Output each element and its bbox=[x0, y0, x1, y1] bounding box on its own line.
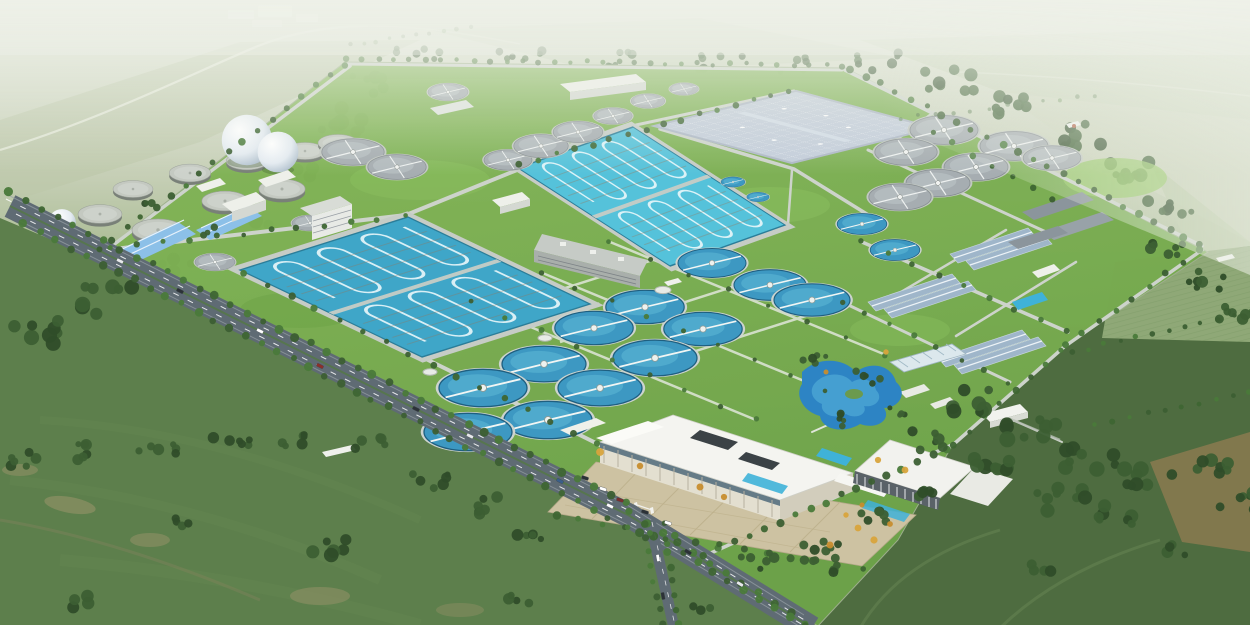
tree-clump bbox=[75, 297, 90, 312]
tree bbox=[663, 548, 671, 556]
tree bbox=[353, 388, 362, 397]
tree bbox=[1064, 328, 1070, 334]
tree bbox=[161, 292, 169, 300]
tree bbox=[574, 344, 580, 350]
tree bbox=[465, 420, 473, 428]
tree-clump bbox=[282, 443, 289, 450]
tree bbox=[179, 300, 185, 306]
tree bbox=[403, 213, 408, 218]
tree bbox=[606, 239, 611, 244]
tree-clump bbox=[1042, 493, 1053, 504]
yellow-tree bbox=[855, 525, 862, 532]
tree-clump bbox=[205, 230, 211, 236]
tree bbox=[1043, 362, 1049, 368]
tree-clump bbox=[1051, 482, 1064, 495]
tree bbox=[1096, 318, 1102, 324]
tree-clump bbox=[999, 431, 1015, 447]
small-tank bbox=[655, 286, 671, 293]
tree bbox=[402, 390, 409, 397]
tree-clump bbox=[837, 416, 843, 422]
tree bbox=[539, 270, 544, 275]
tree bbox=[1086, 348, 1091, 353]
yellow-tree bbox=[721, 494, 727, 500]
tree bbox=[495, 458, 504, 467]
tree bbox=[641, 520, 649, 528]
tree-clump bbox=[1214, 468, 1225, 479]
tree bbox=[726, 286, 731, 291]
tree bbox=[161, 239, 166, 244]
tree-clump bbox=[474, 501, 483, 510]
tree bbox=[22, 197, 29, 204]
tree bbox=[18, 219, 27, 228]
tree bbox=[85, 231, 91, 237]
tree-clump bbox=[144, 200, 149, 205]
tree bbox=[1179, 405, 1184, 410]
blue-clarifier bbox=[436, 368, 531, 408]
aerial-render bbox=[0, 0, 1250, 625]
digester-tank bbox=[78, 205, 122, 227]
tree bbox=[269, 226, 275, 232]
tree bbox=[307, 339, 314, 346]
tree bbox=[195, 308, 204, 317]
tree bbox=[1167, 328, 1172, 333]
tree-clump bbox=[1167, 469, 1178, 480]
tree bbox=[432, 428, 439, 435]
tree-clump bbox=[746, 553, 755, 562]
yellow-tree bbox=[637, 463, 643, 469]
tree bbox=[1049, 196, 1055, 202]
tree bbox=[860, 566, 866, 572]
tree bbox=[502, 395, 508, 401]
blue-clarifier-small bbox=[746, 192, 770, 202]
tree bbox=[337, 379, 345, 387]
treatment-plant-rendering bbox=[0, 0, 1250, 625]
tree-clump bbox=[898, 410, 905, 417]
tree bbox=[417, 418, 423, 424]
tree-clump bbox=[864, 516, 873, 525]
tree-clump bbox=[297, 439, 308, 450]
tree bbox=[840, 300, 845, 305]
tree bbox=[1030, 185, 1036, 191]
tree bbox=[647, 372, 652, 377]
tree-clump bbox=[852, 368, 859, 375]
tree bbox=[858, 238, 863, 243]
tree bbox=[1092, 422, 1097, 427]
tree-clump bbox=[1216, 286, 1223, 293]
tree-clump bbox=[323, 538, 331, 546]
tree bbox=[469, 299, 474, 304]
tree bbox=[67, 246, 75, 254]
tree bbox=[650, 579, 655, 584]
tree bbox=[625, 524, 631, 530]
tree bbox=[1058, 348, 1063, 353]
tree-clump bbox=[1036, 429, 1050, 443]
tree bbox=[430, 362, 437, 369]
tree bbox=[525, 407, 530, 412]
yellow-tree bbox=[875, 457, 881, 463]
tree bbox=[114, 268, 123, 277]
tree bbox=[197, 286, 204, 293]
pond-island bbox=[845, 389, 863, 399]
tree bbox=[385, 402, 393, 410]
tree-clump bbox=[958, 384, 970, 396]
tree bbox=[417, 397, 425, 405]
tree bbox=[214, 233, 220, 239]
tree bbox=[69, 222, 76, 229]
tree-clump bbox=[529, 531, 537, 539]
tree bbox=[671, 532, 679, 540]
tree-clump bbox=[1035, 415, 1044, 424]
yellow-tree bbox=[860, 503, 865, 508]
tree-clump bbox=[1145, 243, 1156, 254]
tree-clump bbox=[438, 479, 449, 490]
tree bbox=[681, 328, 686, 333]
tree bbox=[322, 224, 328, 230]
tree-clump bbox=[879, 510, 889, 520]
tree-clump bbox=[171, 449, 180, 458]
tree-clump bbox=[82, 597, 94, 609]
tree bbox=[716, 541, 722, 547]
tree bbox=[882, 472, 890, 480]
gray-clarifier bbox=[194, 253, 237, 271]
tree-clump bbox=[1196, 276, 1208, 288]
tree bbox=[1150, 331, 1156, 337]
tree-clump bbox=[1078, 490, 1092, 504]
tree bbox=[838, 491, 844, 497]
tree bbox=[673, 538, 681, 546]
tree bbox=[543, 459, 549, 465]
tree-clump bbox=[90, 308, 102, 320]
tree-clump bbox=[512, 529, 524, 541]
tree bbox=[1006, 381, 1010, 385]
tree-clump bbox=[1195, 268, 1203, 276]
tree bbox=[1062, 341, 1069, 348]
tree bbox=[210, 291, 219, 300]
tree bbox=[659, 529, 667, 537]
tree bbox=[510, 466, 516, 472]
tree bbox=[1078, 330, 1084, 336]
tree bbox=[706, 560, 713, 567]
tree bbox=[708, 568, 716, 576]
tree bbox=[374, 217, 380, 223]
tree-clump bbox=[968, 452, 981, 465]
tree-clump bbox=[8, 320, 20, 332]
blue-clarifier bbox=[555, 369, 645, 407]
tree bbox=[653, 593, 660, 600]
tree bbox=[321, 373, 328, 380]
tree-clump bbox=[81, 439, 92, 450]
tree bbox=[981, 367, 987, 373]
tree-clump bbox=[1076, 449, 1087, 460]
tree bbox=[716, 343, 720, 347]
tree-clump bbox=[1172, 244, 1179, 251]
tree bbox=[914, 458, 922, 466]
tree bbox=[1128, 415, 1132, 419]
tree bbox=[852, 485, 860, 493]
tree bbox=[724, 578, 730, 584]
tree bbox=[755, 596, 763, 604]
tree bbox=[753, 358, 757, 362]
tree-clump bbox=[1236, 493, 1245, 502]
tree bbox=[384, 339, 389, 344]
tree bbox=[275, 325, 284, 334]
tree-clump bbox=[857, 509, 865, 517]
tree bbox=[605, 515, 611, 521]
tree-clump bbox=[933, 433, 945, 445]
tree-clump bbox=[869, 380, 876, 387]
tree-clump bbox=[430, 484, 438, 492]
tree bbox=[1147, 284, 1152, 289]
tree bbox=[607, 491, 615, 499]
tree-clump bbox=[1165, 542, 1175, 552]
gray-clarifier bbox=[866, 183, 933, 212]
tree-clump bbox=[1133, 461, 1149, 477]
tree bbox=[930, 450, 938, 458]
tree bbox=[462, 444, 469, 451]
tree bbox=[572, 286, 577, 291]
tree bbox=[553, 511, 561, 519]
tree-clump bbox=[81, 282, 91, 292]
tree-clump bbox=[27, 320, 37, 330]
tree bbox=[570, 430, 577, 437]
tree bbox=[1231, 393, 1236, 398]
tree bbox=[804, 319, 810, 325]
tree bbox=[480, 428, 489, 437]
tree bbox=[242, 332, 250, 340]
tree bbox=[961, 283, 966, 288]
tree-clump bbox=[1045, 565, 1056, 576]
tree-clump bbox=[1089, 461, 1104, 476]
tree-clump bbox=[860, 372, 868, 380]
tree bbox=[594, 440, 600, 446]
tree-clump bbox=[823, 354, 828, 359]
tree-clump bbox=[1221, 303, 1229, 311]
tree bbox=[322, 348, 330, 356]
tree bbox=[671, 592, 677, 598]
small-tank bbox=[423, 369, 437, 375]
tree-clump bbox=[340, 534, 351, 545]
tree-clump bbox=[1128, 482, 1136, 490]
tree bbox=[293, 225, 299, 231]
tree bbox=[150, 260, 156, 266]
tree-clump bbox=[757, 566, 763, 572]
tree-clump bbox=[306, 545, 319, 558]
tree bbox=[37, 228, 44, 235]
tree bbox=[290, 333, 299, 342]
tree bbox=[610, 358, 615, 363]
tree bbox=[788, 373, 793, 378]
tree bbox=[646, 548, 652, 554]
blue-clarifier bbox=[675, 247, 748, 278]
tree-clump bbox=[351, 444, 360, 453]
tree bbox=[241, 233, 246, 238]
tree bbox=[453, 373, 460, 380]
tree bbox=[700, 552, 707, 559]
tree-clump bbox=[52, 315, 64, 327]
tree bbox=[1146, 410, 1151, 415]
tree bbox=[244, 310, 252, 318]
tree-clump bbox=[538, 536, 544, 542]
tree-clump bbox=[876, 375, 884, 383]
tree bbox=[936, 272, 942, 278]
tree bbox=[83, 253, 90, 260]
tree-clump bbox=[105, 279, 120, 294]
tree-clump bbox=[1117, 461, 1132, 476]
tree bbox=[600, 522, 606, 528]
tree bbox=[647, 530, 653, 536]
tree bbox=[291, 355, 297, 361]
tree-clump bbox=[69, 594, 80, 605]
tree-clump bbox=[839, 423, 846, 430]
yellow-tree bbox=[596, 448, 604, 456]
yellow-tree bbox=[887, 521, 893, 527]
tree-clump bbox=[972, 396, 987, 411]
tree bbox=[625, 508, 632, 515]
tree bbox=[355, 365, 362, 372]
blue-clarifier bbox=[835, 213, 888, 236]
yellow-tree bbox=[870, 536, 877, 543]
tree-clump bbox=[236, 438, 243, 445]
tree-clump bbox=[1174, 252, 1181, 259]
tree-clump bbox=[184, 519, 192, 527]
tree bbox=[1163, 408, 1168, 413]
tree-clump bbox=[834, 540, 842, 548]
tree bbox=[673, 607, 679, 613]
tree bbox=[692, 539, 700, 547]
tree bbox=[657, 606, 663, 612]
tree bbox=[338, 318, 343, 323]
tree bbox=[909, 261, 915, 267]
tree bbox=[338, 357, 345, 364]
tree bbox=[539, 327, 545, 333]
tree bbox=[574, 475, 581, 482]
tree bbox=[862, 311, 867, 316]
tree bbox=[1128, 296, 1134, 302]
tree bbox=[575, 498, 581, 504]
tree-clump bbox=[23, 463, 30, 470]
tree bbox=[682, 388, 687, 393]
tree-clump bbox=[491, 491, 503, 503]
digester-tank bbox=[113, 181, 153, 201]
tree-clump bbox=[1197, 455, 1209, 467]
tree bbox=[590, 483, 598, 491]
tree-clump bbox=[1040, 504, 1054, 518]
blue-clarifier-small bbox=[720, 177, 746, 188]
tree bbox=[967, 430, 972, 435]
tree bbox=[1214, 397, 1219, 402]
tree-clump bbox=[808, 354, 817, 363]
tree bbox=[310, 305, 317, 312]
tree bbox=[480, 450, 486, 456]
tree bbox=[747, 533, 753, 539]
tree bbox=[718, 404, 723, 409]
tree-clump bbox=[696, 605, 706, 615]
tree bbox=[559, 490, 565, 496]
tree bbox=[590, 506, 598, 514]
yellow-tree bbox=[883, 349, 888, 354]
tree bbox=[477, 385, 482, 390]
tree bbox=[761, 525, 768, 532]
tree-clump bbox=[800, 357, 807, 364]
tree bbox=[125, 224, 131, 230]
tree bbox=[792, 511, 798, 517]
tree-clump bbox=[706, 604, 714, 612]
tree bbox=[1183, 324, 1188, 329]
tree-clump bbox=[8, 454, 15, 461]
tree bbox=[527, 451, 534, 458]
tree bbox=[808, 505, 816, 513]
tree bbox=[1181, 260, 1187, 266]
tree-clump bbox=[1107, 448, 1121, 462]
tree bbox=[432, 406, 439, 413]
tree bbox=[1101, 341, 1106, 346]
tree bbox=[1109, 419, 1115, 425]
tree-clump bbox=[324, 548, 339, 563]
tree-clump bbox=[170, 441, 176, 447]
tree bbox=[610, 298, 614, 302]
tree-clump bbox=[357, 435, 367, 445]
tree bbox=[39, 206, 46, 213]
tree bbox=[265, 283, 270, 288]
tree bbox=[911, 332, 917, 338]
tree-clump bbox=[24, 330, 39, 345]
tree bbox=[960, 358, 965, 363]
tree bbox=[100, 236, 108, 244]
yellow-tree bbox=[902, 467, 909, 474]
tree bbox=[348, 219, 354, 225]
tree bbox=[448, 412, 454, 418]
tree-clump bbox=[1215, 315, 1224, 324]
yellow-tree bbox=[824, 370, 829, 375]
tree bbox=[686, 273, 690, 277]
tree-clump bbox=[1029, 565, 1039, 575]
tree bbox=[997, 401, 1002, 406]
tree bbox=[4, 187, 13, 196]
tree-clump bbox=[376, 434, 387, 445]
tree bbox=[115, 246, 123, 254]
blue-clarifier bbox=[552, 310, 636, 346]
tree bbox=[950, 442, 957, 449]
tree-clump bbox=[25, 448, 34, 457]
tree-clump bbox=[1094, 512, 1104, 522]
tree bbox=[108, 237, 115, 244]
tree bbox=[575, 516, 581, 522]
tree bbox=[723, 569, 730, 576]
tree-clump bbox=[887, 405, 892, 410]
tree bbox=[495, 436, 503, 444]
blue-clarifier bbox=[610, 339, 700, 377]
tree bbox=[502, 315, 507, 320]
tree-clump bbox=[416, 476, 426, 486]
tree bbox=[823, 389, 828, 394]
tree-clump bbox=[153, 444, 164, 455]
tree-clump bbox=[211, 224, 218, 231]
tree bbox=[663, 536, 669, 542]
tree-clump bbox=[947, 404, 962, 419]
tree bbox=[360, 329, 365, 334]
tree bbox=[887, 322, 891, 326]
tree bbox=[741, 546, 748, 553]
tree bbox=[367, 370, 376, 379]
tree bbox=[755, 588, 762, 595]
tree-clump bbox=[810, 545, 820, 555]
tree bbox=[99, 261, 108, 270]
tree-clump bbox=[829, 567, 839, 577]
tree bbox=[1114, 308, 1120, 314]
tree bbox=[1069, 349, 1075, 355]
tree-clump bbox=[508, 592, 515, 599]
tree-clump bbox=[738, 554, 745, 561]
